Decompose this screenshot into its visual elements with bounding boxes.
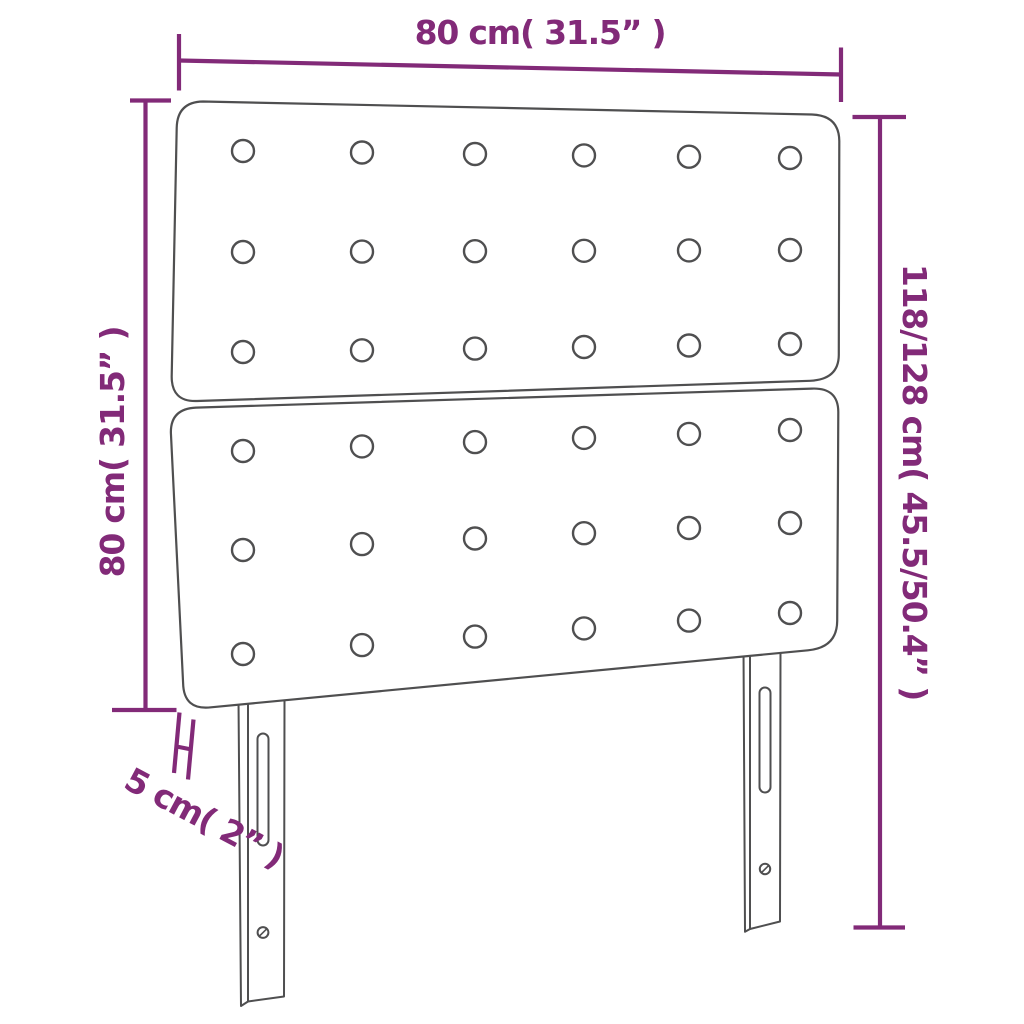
tufting-button — [232, 241, 254, 263]
width-dimension: 80 cm( 31.5” ) — [179, 13, 841, 102]
leg-slot — [760, 688, 771, 793]
tufting-button — [573, 522, 595, 544]
tufting-button — [351, 142, 373, 164]
height-dimension-left: 80 cm( 31.5” ) — [93, 101, 177, 711]
tufting-button — [232, 539, 254, 561]
tufting-button — [351, 533, 373, 555]
tufting-button — [779, 147, 801, 169]
tufting-button — [351, 241, 373, 263]
tufting-button — [351, 634, 373, 656]
tufting-button — [678, 610, 700, 632]
thickness-crossbar — [177, 747, 192, 750]
tufting-button — [573, 144, 595, 166]
tufting-button — [351, 435, 373, 457]
tufting-button — [232, 440, 254, 462]
tufting-button — [779, 602, 801, 624]
tufting-button — [464, 626, 486, 648]
tufting-button — [464, 240, 486, 262]
tufting-button — [232, 341, 254, 363]
tufting-button — [464, 338, 486, 360]
headboard-leg-right — [744, 648, 781, 932]
tufting-button — [573, 427, 595, 449]
headboard-lower-panel — [171, 389, 838, 708]
tufting-button — [573, 240, 595, 262]
tufting-button — [678, 239, 700, 261]
tufting-button — [779, 512, 801, 534]
thickness-tick-outer — [174, 713, 180, 774]
tufting-button — [779, 333, 801, 355]
width-dimension-label: 80 cm( 31.5” ) — [415, 13, 666, 52]
tufting-button — [351, 339, 373, 361]
tufting-button — [678, 423, 700, 445]
tufting-button — [678, 517, 700, 539]
headboard-upper-panel — [172, 102, 840, 402]
tufting-button — [464, 528, 486, 550]
tufting-button — [232, 643, 254, 665]
height-dimension-right: 118/128 cm( 45.5/50.4” ) — [853, 117, 935, 928]
tufting-button — [464, 431, 486, 453]
tufting-button — [573, 617, 595, 639]
dimension-diagram-canvas: 80 cm( 31.5” ) 80 cm( 31.5” ) 118/128 cm… — [0, 0, 1024, 1024]
height-dimension-label-right: 118/128 cm( 45.5/50.4” ) — [895, 264, 934, 700]
tufting-button — [779, 239, 801, 261]
tufting-button — [678, 335, 700, 357]
tufting-button — [678, 146, 700, 168]
dimension-line — [179, 61, 841, 75]
tufting-button — [779, 419, 801, 441]
tufting-button — [573, 336, 595, 358]
tufting-button — [232, 140, 254, 162]
headboard-dimension-diagram: 80 cm( 31.5” ) 80 cm( 31.5” ) 118/128 cm… — [0, 0, 1024, 1024]
height-dimension-label-left: 80 cm( 31.5” ) — [93, 327, 132, 578]
tufting-button — [464, 143, 486, 165]
